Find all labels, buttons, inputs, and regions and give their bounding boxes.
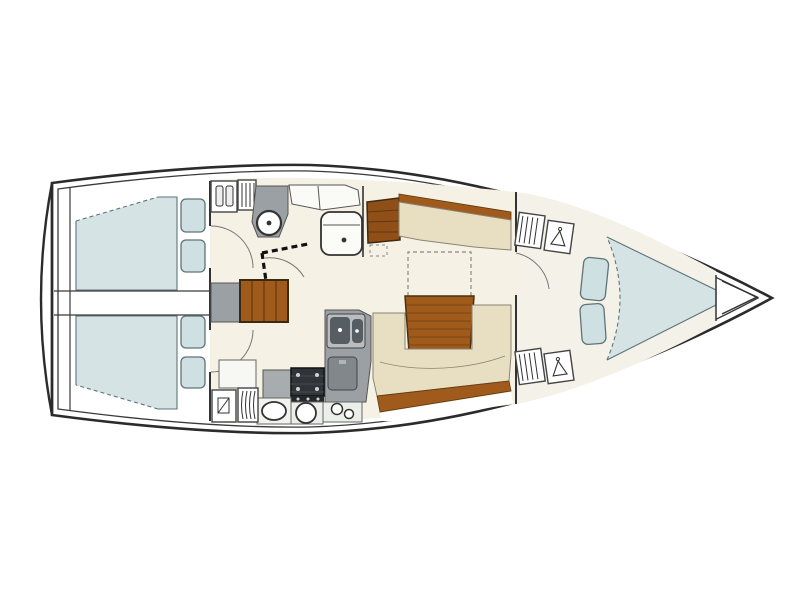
locker-cabinet [212,390,236,422]
shelf-locker [515,212,545,248]
wardrobe-forward-bottom [544,350,574,383]
galley-locker-front [219,360,256,388]
burner [315,387,319,391]
faucet-knob [332,404,343,415]
boat-floor-plan [0,0,800,600]
pillow [181,240,205,272]
galley-worktop [263,370,291,398]
shelf-locker [238,180,256,210]
pillow [181,357,205,388]
round-basin [296,403,316,423]
burner [315,373,319,377]
shelf-locker-forward-top [515,212,545,248]
locker-item-icon [226,186,233,206]
shelf-locker-forward-bottom [515,348,545,384]
transom [41,183,52,415]
sink-drain [355,329,359,333]
companionway-side-unit [211,283,240,322]
stove-knob [297,398,300,401]
shelf-locker [515,348,545,384]
pillow [181,199,205,232]
seat-cushion [580,303,607,345]
stove-knob [307,398,310,401]
faucet-knob [345,410,354,419]
seat-cushion [580,257,609,301]
burner [296,387,300,391]
wardrobe [544,220,574,253]
stove-knob [317,398,320,401]
counter-front [323,402,362,422]
burner [296,373,300,377]
floor-plan-svg [0,0,800,600]
fridge-handle [339,360,346,364]
berth-seat-top [580,257,609,301]
toilet-button [342,238,347,243]
pillow [181,316,205,348]
sink-drain [338,328,342,332]
wardrobe-forward-top [544,220,574,253]
toilet [321,212,362,255]
sideboard [367,198,400,243]
saloon-table [405,296,474,352]
washbasin-drain [267,221,272,226]
wardrobe [544,350,574,383]
locker-item-icon [216,186,223,206]
berth-seat-bottom [580,303,607,345]
oval-basin [262,402,286,420]
